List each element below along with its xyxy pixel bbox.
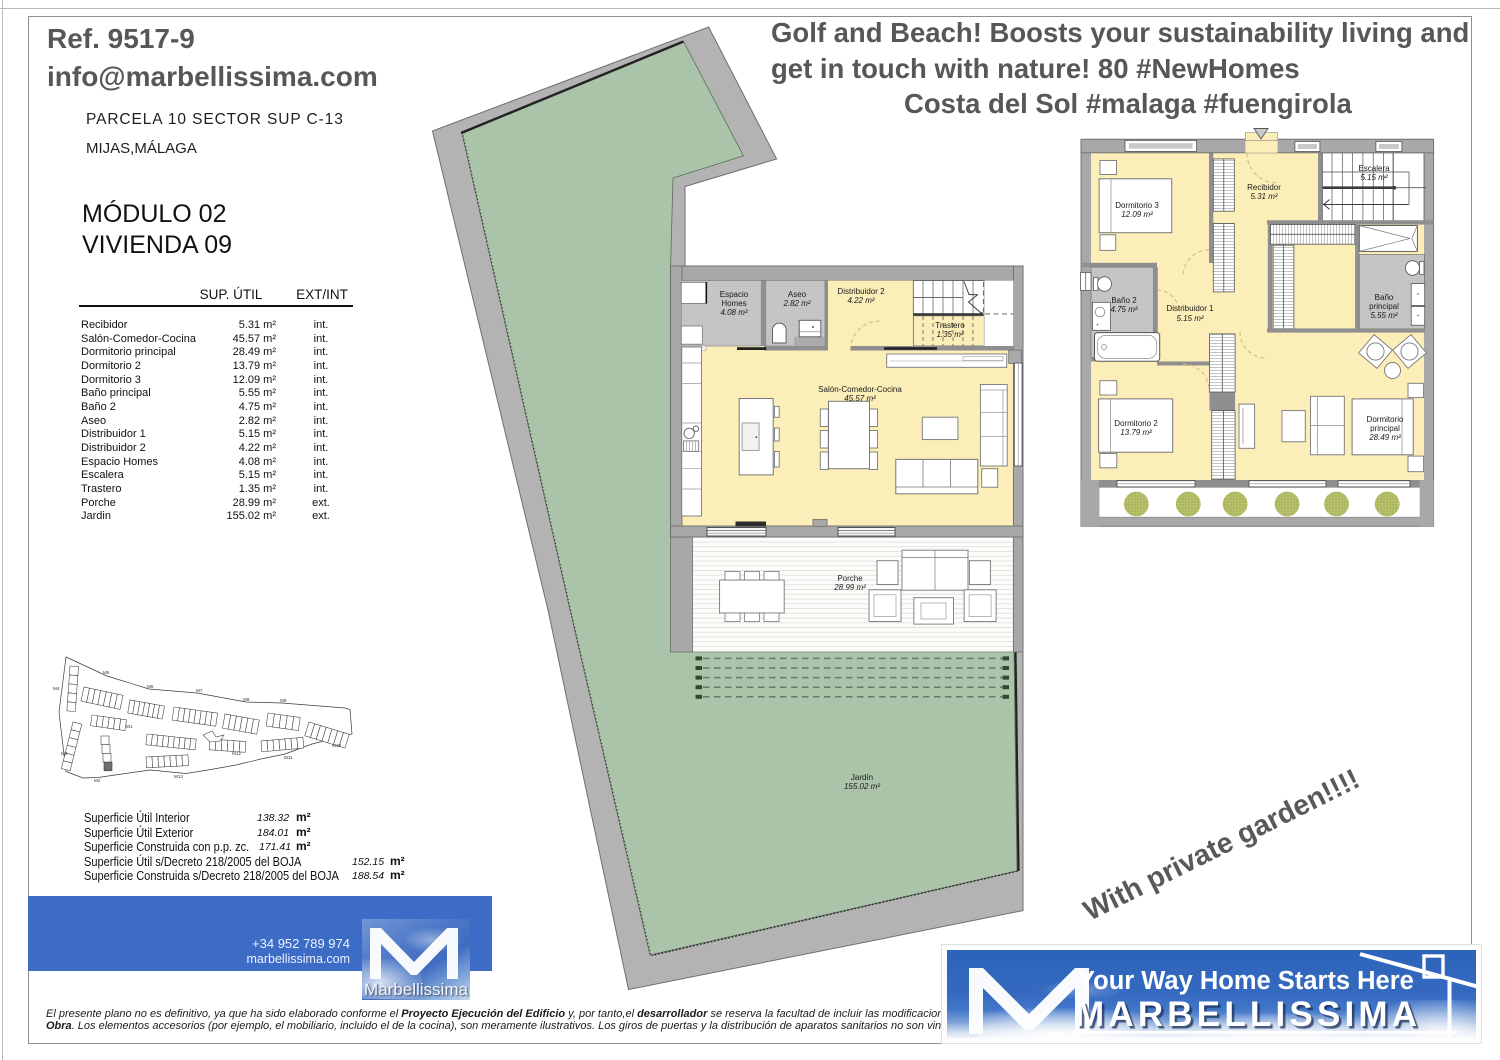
svg-text:5.15 m²: 5.15 m² [1176,314,1203,323]
svg-text:M5: M5 [103,670,110,675]
svg-text:28.99 m²: 28.99 m² [833,583,866,592]
svg-text:M9: M9 [280,698,287,703]
svg-text:Jardín: Jardín [851,773,873,782]
svg-text:12.09 m²: 12.09 m² [1121,210,1153,219]
svg-text:4.75 m²: 4.75 m² [1110,305,1137,314]
svg-text:M1: M1 [126,724,133,729]
svg-text:2.82 m²: 2.82 m² [782,299,810,308]
svg-text:5.55 m²: 5.55 m² [1370,311,1397,320]
svg-text:M6: M6 [147,684,154,689]
svg-text:Salón-Comedor-Cocina: Salón-Comedor-Cocina [818,385,902,394]
svg-text:Porche: Porche [837,574,863,583]
svg-text:5.31 m²: 5.31 m² [1250,192,1277,201]
svg-text:M12: M12 [232,751,241,756]
svg-text:13.79 m²: 13.79 m² [1120,428,1152,437]
svg-text:1.35 m²: 1.35 m² [936,330,963,339]
svg-text:principal: principal [1369,302,1399,311]
svg-text:4.22 m²: 4.22 m² [847,296,874,305]
svg-text:Dormitorio 3: Dormitorio 3 [1115,201,1159,210]
svg-text:Distribuidor 2: Distribuidor 2 [837,287,885,296]
svg-text:Dormitorio 2: Dormitorio 2 [1114,419,1158,428]
svg-text:M8: M8 [243,697,250,702]
svg-text:Aseo: Aseo [788,290,807,299]
svg-text:4.08 m²: 4.08 m² [720,308,747,317]
svg-text:principal: principal [1370,424,1400,433]
svg-text:M4: M4 [53,686,60,691]
svg-text:Recibidor: Recibidor [1247,183,1281,192]
svg-text:M10: M10 [332,743,341,748]
svg-text:Dormitorio: Dormitorio [1367,415,1404,424]
svg-text:Escalera: Escalera [1358,164,1390,173]
svg-text:M7: M7 [196,688,203,693]
svg-text:155.02 m²: 155.02 m² [844,782,880,791]
svg-text:Espacio: Espacio [720,290,749,299]
svg-text:M11: M11 [284,755,293,760]
svg-text:5.15 m²: 5.15 m² [1360,173,1387,182]
svg-text:Homes: Homes [721,299,746,308]
svg-text:Baño: Baño [1375,293,1394,302]
svg-text:M2: M2 [94,778,101,783]
svg-text:45.57 m²: 45.57 m² [844,394,876,403]
svg-text:M3: M3 [61,751,68,756]
svg-text:28.49 m²: 28.49 m² [1368,433,1401,442]
svg-text:Trastero: Trastero [935,321,965,330]
svg-text:Baño 2: Baño 2 [1111,296,1137,305]
svg-text:M13: M13 [174,774,183,779]
svg-text:Distribuidor 1: Distribuidor 1 [1166,304,1214,313]
